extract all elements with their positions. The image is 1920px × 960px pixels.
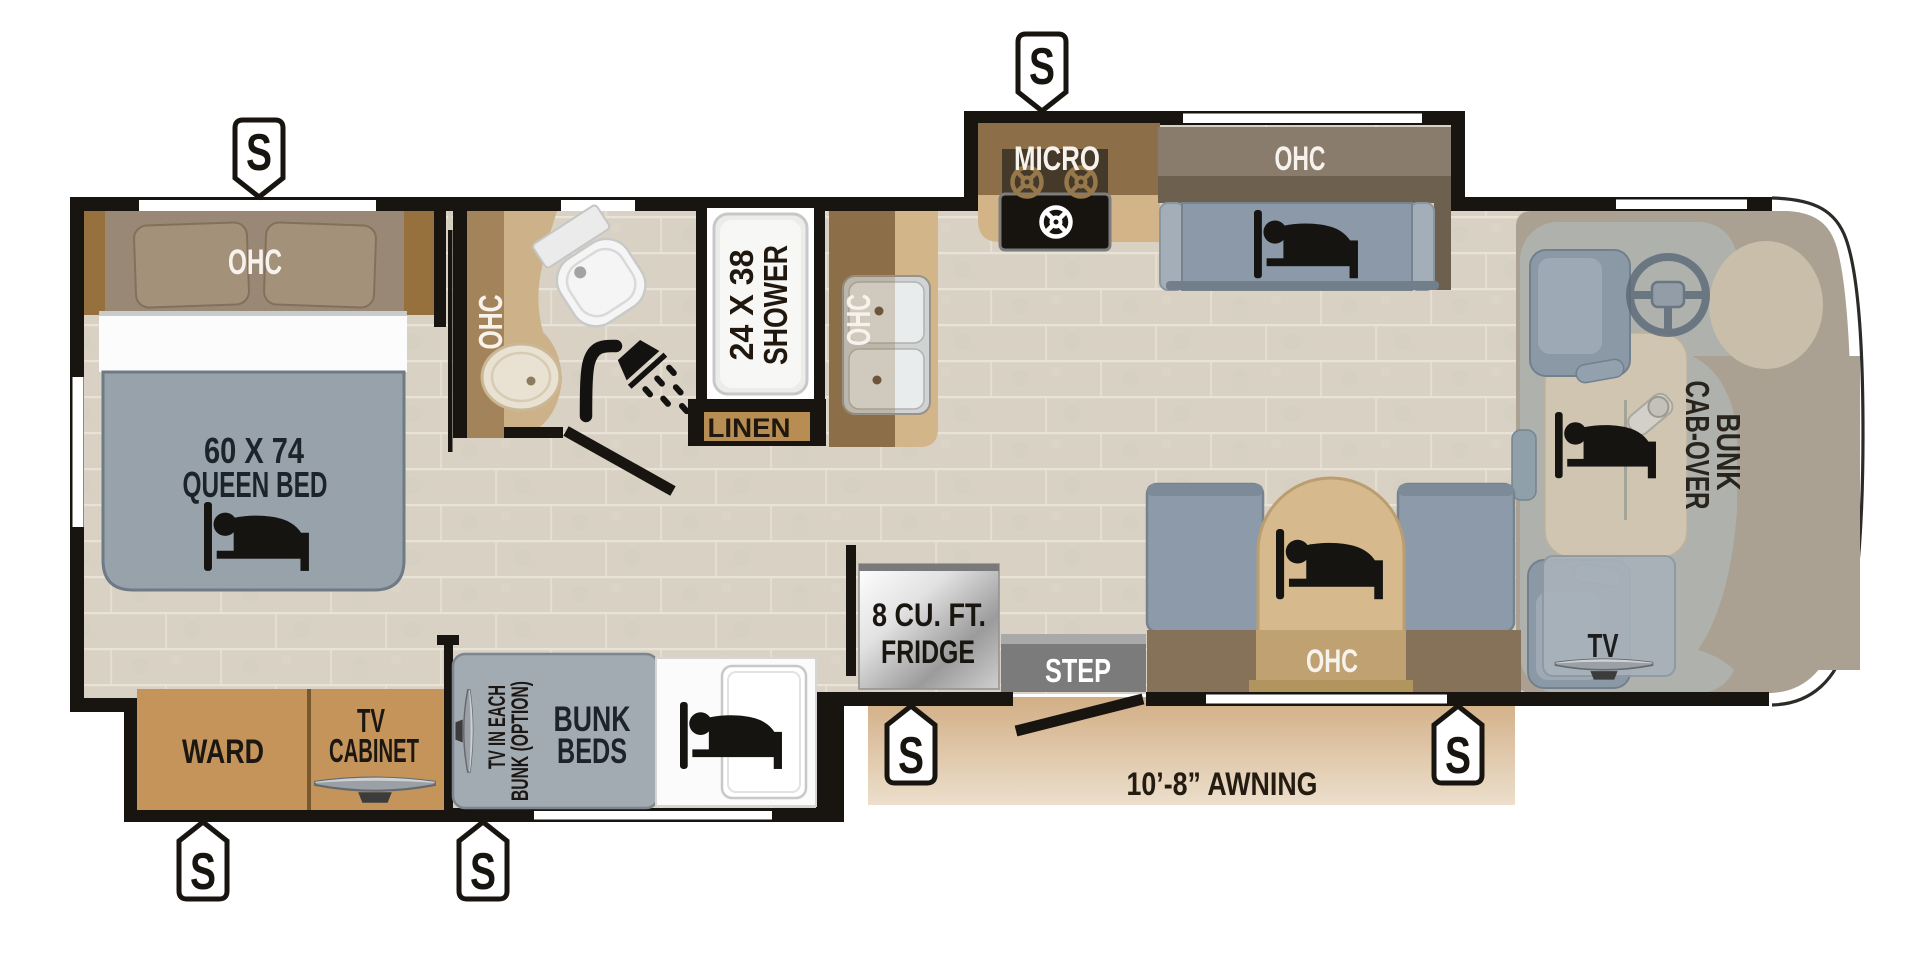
svg-text:8 CU. FT.: 8 CU. FT. (872, 597, 986, 633)
svg-text:FRIDGE: FRIDGE (881, 634, 975, 670)
svg-text:BEDS: BEDS (557, 732, 627, 771)
svg-text:SHOWER: SHOWER (757, 245, 794, 365)
svg-text:STEP: STEP (1045, 652, 1111, 689)
svg-text:S: S (898, 727, 924, 785)
svg-text:OHC: OHC (228, 243, 282, 282)
svg-text:CABINET: CABINET (329, 732, 419, 769)
svg-text:BUNK (OPTION): BUNK (OPTION) (507, 681, 534, 801)
svg-text:S: S (1445, 727, 1471, 785)
svg-text:S: S (190, 843, 216, 901)
svg-text:10’-8” AWNING: 10’-8” AWNING (1127, 766, 1318, 802)
svg-text:WARD: WARD (182, 733, 264, 771)
svg-text:BUNK: BUNK (1710, 414, 1747, 491)
svg-text:OHC: OHC (1306, 643, 1358, 679)
svg-text:S: S (1029, 38, 1055, 96)
svg-text:OHC: OHC (472, 295, 509, 350)
svg-text:OHC: OHC (840, 294, 877, 346)
svg-text:S: S (246, 124, 272, 182)
svg-text:LINEN: LINEN (708, 413, 791, 443)
svg-text:QUEEN BED: QUEEN BED (183, 464, 328, 505)
svg-text:S: S (470, 843, 496, 901)
svg-text:MICRO: MICRO (1014, 140, 1100, 178)
svg-text:OHC: OHC (1275, 140, 1326, 178)
svg-text:24 X 38: 24 X 38 (723, 250, 760, 361)
